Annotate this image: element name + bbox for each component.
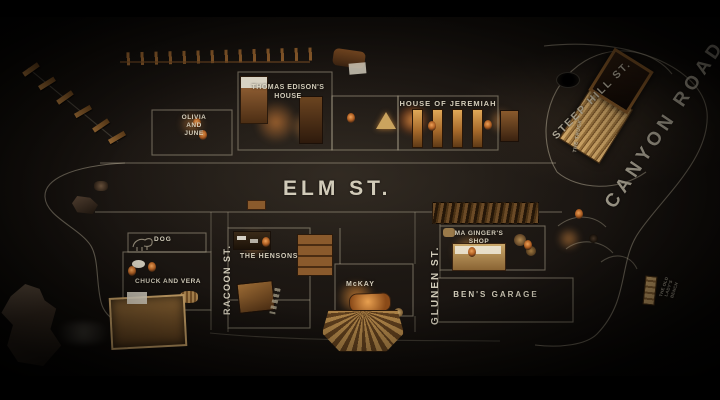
bench-elm	[247, 200, 266, 210]
person-figure	[262, 237, 270, 247]
building-label-hensons: THE HENSONS	[232, 253, 306, 262]
rock-small	[94, 181, 108, 191]
person-figure	[428, 121, 436, 131]
building-label-chuck-vera: CHUCK AND VERA	[130, 278, 206, 286]
stick-row-rail	[120, 61, 310, 63]
street-label-elm: ELM ST.	[283, 176, 392, 202]
person-figure	[468, 247, 476, 257]
fence-posts	[20, 55, 130, 147]
gazebo-fan-roof	[322, 310, 404, 352]
glass-pieces	[237, 236, 246, 240]
room-outline-bens-garage	[438, 278, 573, 322]
fence-post	[92, 118, 110, 132]
orchard-cart	[109, 294, 188, 350]
building-label-line: JUNE	[176, 130, 212, 138]
bush-arcs	[558, 217, 637, 269]
church-pew	[412, 109, 423, 148]
easel-stand	[376, 112, 396, 129]
counter-goods	[455, 246, 501, 254]
building-label-line: HOUSE	[244, 93, 332, 102]
building-label-thomas-edison: THOMAS EDISON'S HOUSE	[244, 84, 332, 102]
building-label-olivia-june: OLIVIA AND JUNE	[176, 114, 212, 138]
glass-pieces	[250, 239, 258, 243]
church-pew	[472, 109, 483, 148]
label-dog: DOG	[154, 236, 172, 244]
rock-hole	[556, 72, 580, 88]
shop-counter	[452, 243, 506, 271]
organ	[500, 110, 519, 142]
church-pew	[452, 109, 463, 148]
sofa-mckay	[349, 292, 392, 312]
building-label-line: MA GINGER'S	[448, 230, 510, 238]
person-figure	[347, 113, 355, 123]
building-label-jeremiah: HOUSE OF JEREMIAH	[398, 99, 498, 108]
dog-chalk-outline	[133, 239, 152, 251]
fence-post	[22, 62, 40, 76]
person-figure	[148, 262, 156, 272]
paper-sheet	[349, 62, 367, 74]
letterbox-bar-top	[0, 0, 720, 17]
fence-post	[38, 77, 56, 91]
fence-post	[56, 90, 74, 104]
building-label-bens-garage: BEN'S GARAGE	[450, 290, 542, 300]
building-label-line: OLIVIA	[176, 114, 212, 122]
gooseberry-bushes	[432, 202, 539, 224]
fence-post	[108, 131, 126, 144]
fence-post	[74, 105, 92, 118]
desk-edison	[299, 96, 323, 144]
street-label-glunen: GLUNEN ST.	[430, 246, 443, 325]
person-figure	[128, 266, 136, 276]
stage-floor-map: ELM ST. CANYON ROAD STEEP HILL ST. RACOO…	[0, 0, 720, 400]
paper-sheet	[127, 292, 147, 304]
building-label-ma-ginger: MA GINGER'S SHOP	[448, 230, 510, 246]
letterbox-bar-bottom	[0, 376, 720, 400]
smoke-wisp	[48, 322, 118, 344]
building-label-line: THOMAS EDISON'S	[244, 84, 332, 93]
person-figure	[589, 234, 598, 243]
building-label-mckay: McKAY	[346, 281, 375, 290]
person-figure	[484, 120, 492, 130]
person-figure	[575, 209, 583, 219]
person-figure	[524, 240, 532, 250]
building-label-line: SHOP	[448, 238, 510, 246]
